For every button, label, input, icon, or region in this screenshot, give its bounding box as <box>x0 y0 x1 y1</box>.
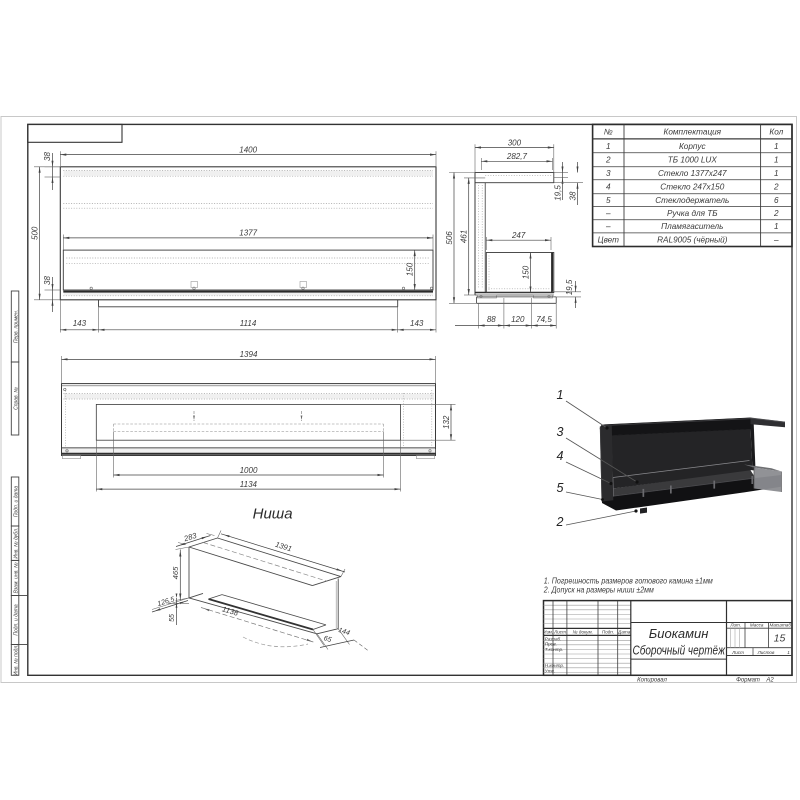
svg-text:1: 1 <box>774 156 779 165</box>
svg-text:Лист: Лист <box>553 629 566 634</box>
svg-text:132: 132 <box>442 415 451 429</box>
svg-text:Ниша: Ниша <box>253 506 293 523</box>
svg-text:Масштаб: Масштаб <box>769 623 791 628</box>
svg-text:1394: 1394 <box>240 350 258 359</box>
svg-text:1134: 1134 <box>240 480 258 489</box>
svg-text:Справ. №: Справ. № <box>13 387 19 410</box>
svg-text:5: 5 <box>606 196 611 205</box>
svg-text:Н.контр.: Н.контр. <box>545 663 564 668</box>
svg-text:247: 247 <box>511 231 526 240</box>
svg-text:А2: А2 <box>765 677 774 683</box>
svg-text:4: 4 <box>606 183 611 192</box>
svg-text:Инв. № подл.: Инв. № подл. <box>13 644 19 675</box>
svg-text:Кол: Кол <box>769 128 783 137</box>
svg-text:Стекло 1377х247: Стекло 1377х247 <box>658 169 727 178</box>
svg-text:№ докум.: № докум. <box>573 629 593 634</box>
svg-text:Изм.: Изм. <box>543 629 553 634</box>
svg-text:Пров.: Пров. <box>545 642 557 647</box>
svg-text:300: 300 <box>508 138 522 147</box>
svg-text:Пламягаситель: Пламягаситель <box>661 222 723 231</box>
svg-text:Лист: Лист <box>731 650 744 655</box>
svg-text:19,5: 19,5 <box>553 185 562 201</box>
svg-text:Подп.: Подп. <box>602 629 614 634</box>
svg-text:Сборочный чертёж: Сборочный чертёж <box>633 643 726 658</box>
svg-text:120: 120 <box>511 315 525 324</box>
svg-text:6: 6 <box>774 196 779 205</box>
svg-text:2: 2 <box>773 183 779 192</box>
svg-text:88: 88 <box>487 315 496 324</box>
svg-text:1: 1 <box>774 222 779 231</box>
svg-text:Комплектация: Комплектация <box>664 128 722 137</box>
svg-text:1: 1 <box>774 142 779 151</box>
svg-text:74,5: 74,5 <box>536 315 552 324</box>
svg-text:Дата: Дата <box>617 629 631 634</box>
svg-text:3: 3 <box>606 169 611 178</box>
svg-text:2: 2 <box>556 515 564 529</box>
svg-text:19,5: 19,5 <box>565 279 574 295</box>
svg-text:38: 38 <box>43 276 52 285</box>
svg-text:1: 1 <box>557 388 564 402</box>
svg-text:Корпус: Корпус <box>679 142 706 151</box>
svg-text:3: 3 <box>557 425 564 439</box>
svg-text:Подп. и дата: Подп. и дата <box>13 486 19 518</box>
svg-text:Листов: Листов <box>757 650 775 655</box>
svg-text:461: 461 <box>460 230 469 243</box>
svg-text:Взам. инв. №: Взам. инв. № <box>13 562 19 594</box>
svg-text:Перв. примен.: Перв. примен. <box>13 310 19 343</box>
svg-text:ТБ 1000 LUX: ТБ 1000 LUX <box>668 156 718 165</box>
svg-text:Утв.: Утв. <box>545 668 555 673</box>
svg-text:Цвет: Цвет <box>598 236 620 245</box>
svg-text:282,7: 282,7 <box>506 152 528 161</box>
svg-text:Копировал: Копировал <box>637 677 667 683</box>
svg-text:1000: 1000 <box>240 466 258 475</box>
svg-text:2: 2 <box>773 209 779 218</box>
svg-text:№: № <box>604 128 613 137</box>
svg-text:38: 38 <box>43 152 52 161</box>
svg-text:2: 2 <box>605 156 611 165</box>
svg-text:1: 1 <box>606 142 611 151</box>
svg-text:Лит.: Лит. <box>729 623 741 628</box>
svg-text:–: – <box>605 209 611 218</box>
svg-text:15: 15 <box>774 633 786 645</box>
svg-text:–: – <box>773 236 779 245</box>
svg-text:Подп. и дата: Подп. и дата <box>13 604 19 636</box>
svg-text:465: 465 <box>171 566 180 579</box>
svg-text:Ручка для ТБ: Ручка для ТБ <box>667 209 718 218</box>
svg-text:Инв. № дубл.: Инв. № дубл. <box>13 528 19 559</box>
svg-text:1: 1 <box>774 169 779 178</box>
svg-text:1400: 1400 <box>239 145 257 154</box>
svg-text:Стеклодержатель: Стеклодержатель <box>655 196 729 205</box>
svg-text:38: 38 <box>568 191 577 200</box>
svg-text:Формат: Формат <box>736 677 760 683</box>
svg-text:2. Допуск на размеры ниши ±2мм: 2. Допуск на размеры ниши ±2мм <box>543 585 654 595</box>
svg-text:1: 1 <box>787 650 790 655</box>
svg-text:1377: 1377 <box>239 229 257 238</box>
svg-text:5: 5 <box>557 481 564 495</box>
svg-text:143: 143 <box>410 319 424 328</box>
svg-text:506: 506 <box>445 231 454 245</box>
svg-text:RAL9005 (чёрный): RAL9005 (чёрный) <box>657 236 728 245</box>
svg-text:Т.контр.: Т.контр. <box>545 647 564 652</box>
svg-text:Стекло 247х150: Стекло 247х150 <box>660 183 724 192</box>
svg-text:4: 4 <box>557 449 564 463</box>
svg-text:55: 55 <box>169 614 176 622</box>
svg-text:Масса: Масса <box>750 623 764 628</box>
svg-text:Биокамин: Биокамин <box>649 626 709 641</box>
svg-text:1114: 1114 <box>240 319 257 328</box>
svg-text:150: 150 <box>521 265 530 279</box>
svg-text:143: 143 <box>73 319 87 328</box>
svg-text:–: – <box>605 222 611 231</box>
svg-text:150: 150 <box>406 262 415 276</box>
svg-text:500: 500 <box>30 226 39 240</box>
